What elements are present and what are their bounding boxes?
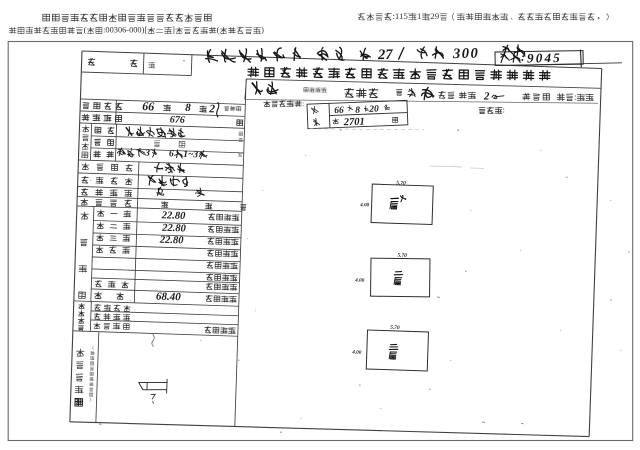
svg-text:5.70: 5.70 [390,325,400,331]
svg-text:2701: 2701 [343,117,365,129]
svg-text:]: ] [172,26,175,35]
svg-text:4.00: 4.00 [354,278,365,284]
svg-text:1~3: 1~3 [183,150,198,160]
svg-text:8: 8 [355,106,360,116]
svg-text:4.00: 4.00 [351,349,362,355]
svg-text:676: 676 [170,114,185,125]
svg-text:): ) [261,26,264,35]
svg-text:2: 2 [208,103,215,115]
svg-text:9045: 9045 [527,50,562,66]
svg-text::00306-000)[: :00306-000)[ [103,26,147,35]
svg-text:(: ( [217,26,220,35]
svg-text::: : [521,52,525,64]
svg-text::: : [503,106,505,115]
svg-text::: : [574,92,577,102]
svg-text:5.70: 5.70 [397,253,407,259]
svg-text:66: 66 [142,99,154,113]
svg-text:4.00: 4.00 [359,202,370,208]
svg-text:20: 20 [368,104,379,114]
svg-text:22.80: 22.80 [159,235,185,247]
svg-text:22.80: 22.80 [161,223,187,235]
svg-text:5.70: 5.70 [396,180,406,186]
svg-text::115: :115 [392,11,408,21]
svg-text:68.40: 68.40 [156,291,182,304]
svg-text:66: 66 [334,106,344,116]
svg-text:3: 3 [144,149,150,159]
svg-text:29: 29 [430,11,439,21]
svg-text::: : [302,99,304,108]
svg-text:1: 1 [417,11,421,21]
svg-text:8: 8 [185,102,191,114]
svg-text:27: 27 [377,47,394,63]
svg-text:(: ( [84,26,87,35]
svg-text:300: 300 [452,46,480,63]
svg-text:22.80: 22.80 [160,210,186,222]
svg-text:6: 6 [169,149,174,159]
svg-text:2: 2 [483,91,490,103]
